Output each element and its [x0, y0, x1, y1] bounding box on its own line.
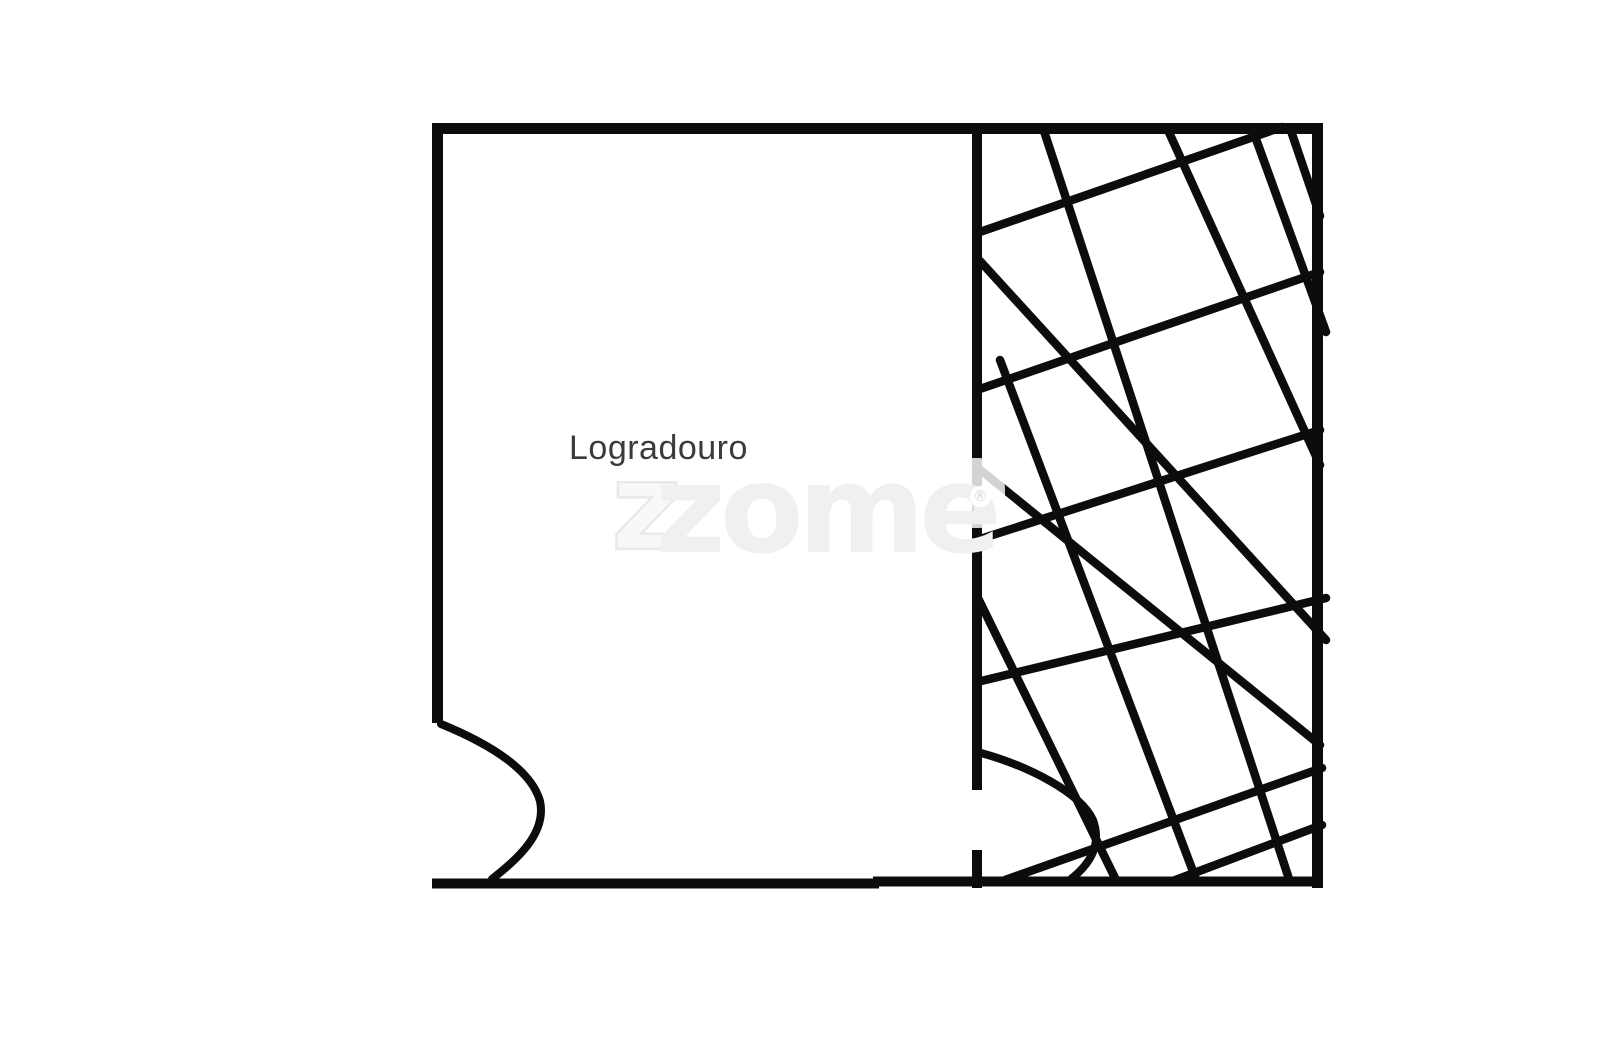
left-door-swing [441, 724, 541, 879]
hatch-line-up [977, 127, 1282, 233]
room-label-logradouro: Logradouro [569, 429, 748, 468]
floor-plan-drawing [0, 0, 1600, 1062]
floorplan-page: { "page": { "width": 1600, "height": 106… [0, 0, 1600, 1062]
hatch-line-up [977, 272, 1320, 390]
hatch-line-up [1170, 825, 1322, 882]
right-door-swing [981, 753, 1096, 879]
